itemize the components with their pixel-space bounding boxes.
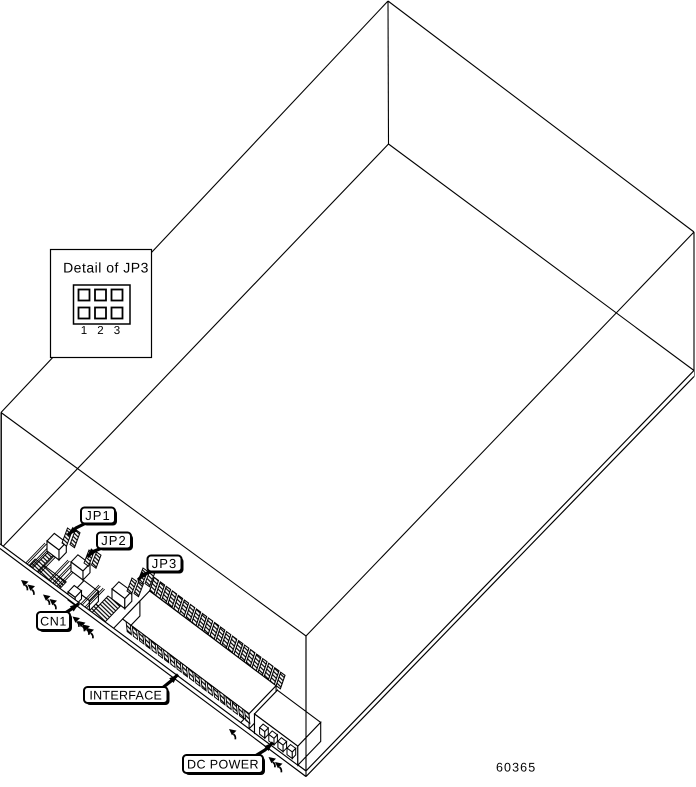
- svg-text:Detail of JP3: Detail of JP3: [63, 260, 149, 276]
- svg-text:JP1: JP1: [85, 508, 110, 523]
- svg-text:1: 1: [81, 325, 87, 337]
- svg-text:CN1: CN1: [40, 615, 67, 629]
- svg-text:JP3: JP3: [152, 556, 177, 571]
- svg-text:60365: 60365: [496, 761, 536, 775]
- svg-text:INTERFACE: INTERFACE: [89, 689, 162, 703]
- svg-text:JP2: JP2: [101, 533, 126, 548]
- svg-text:3: 3: [114, 325, 120, 337]
- svg-text:DC POWER: DC POWER: [187, 758, 259, 772]
- svg-text:2: 2: [97, 325, 103, 337]
